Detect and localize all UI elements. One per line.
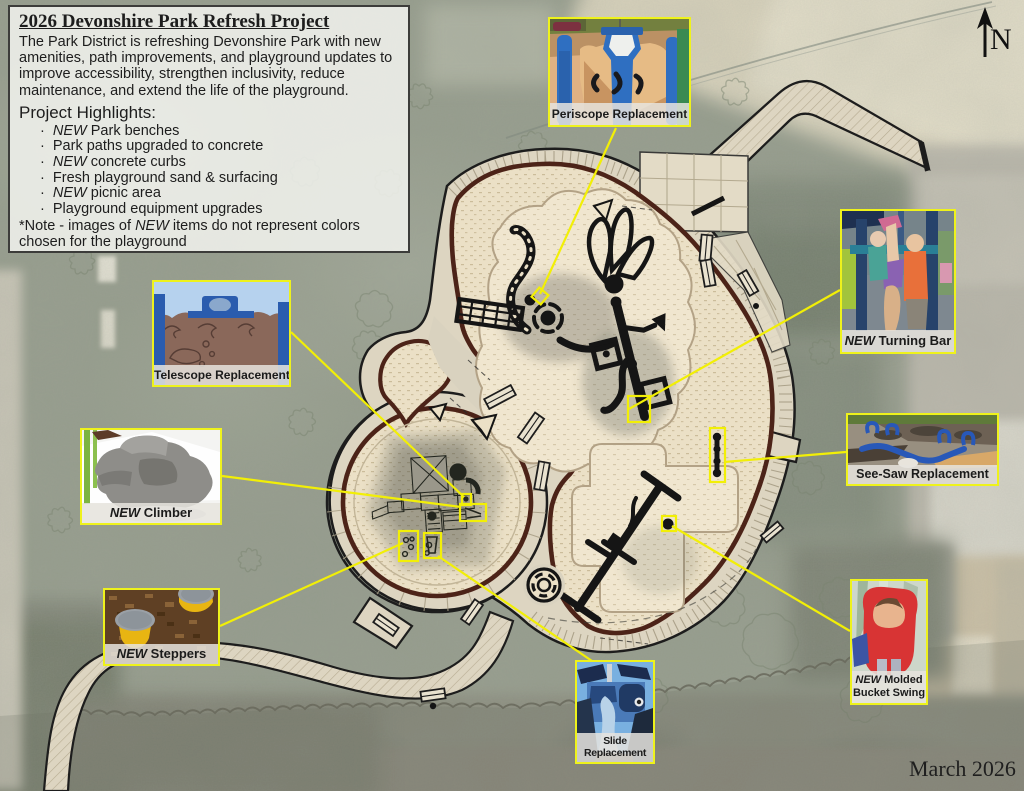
svg-text:N: N <box>990 23 1012 56</box>
